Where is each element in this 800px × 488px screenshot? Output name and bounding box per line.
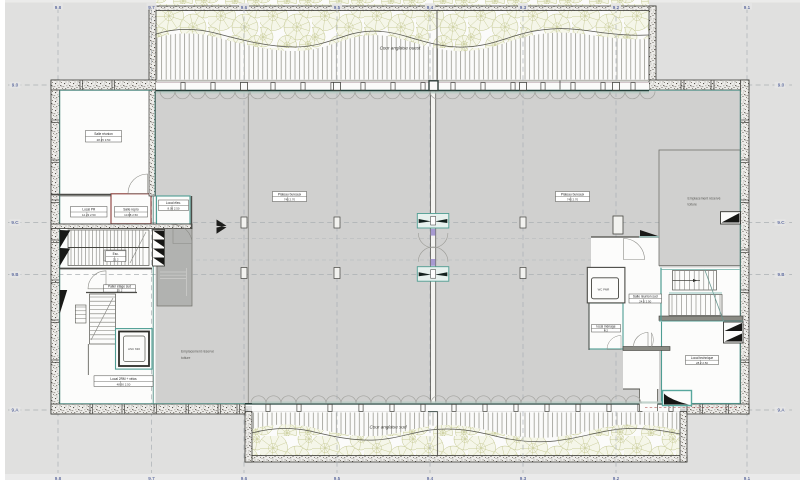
svg-text:9.1: 9.1	[744, 476, 751, 481]
svg-text:WC PMR: WC PMR	[598, 288, 610, 292]
svg-text:Emplacement réservé: Emplacement réservé	[688, 197, 721, 201]
svg-text:9.2: 9.2	[613, 5, 620, 10]
svg-text:toiture: toiture	[688, 203, 698, 207]
svg-text:Esc.: Esc.	[113, 252, 119, 256]
svg-text:9.6: 9.6	[241, 5, 248, 10]
svg-text:9.0: 9.0	[12, 83, 19, 88]
svg-text:9.A: 9.A	[12, 408, 20, 413]
svg-text:9.C: 9.C	[777, 220, 785, 225]
svg-text:Salle repro: Salle repro	[123, 208, 139, 212]
svg-text:toiture: toiture	[181, 356, 191, 360]
svg-text:9.6: 9.6	[241, 476, 248, 481]
svg-text:9.1: 9.1	[744, 5, 751, 10]
svg-text:9.4: 9.4	[427, 5, 434, 10]
svg-text:Local PR: Local PR	[82, 208, 96, 212]
svg-text:Local technique: Local technique	[691, 356, 714, 360]
svg-text:745 2.70: 745 2.70	[567, 198, 579, 202]
svg-text:9.C: 9.C	[11, 220, 19, 225]
svg-text:9.B: 9.B	[12, 272, 19, 277]
svg-text:9.5: 9.5	[334, 476, 341, 481]
svg-text:Plateau bureaux: Plateau bureaux	[278, 193, 302, 197]
svg-text:4.2: 4.2	[604, 328, 608, 332]
svg-text:Salle réunion: Salle réunion	[94, 132, 113, 136]
svg-text:9.8: 9.8	[55, 5, 62, 10]
svg-text:28.15 3.50: 28.15 3.50	[97, 138, 111, 142]
svg-text:9.8: 9.8	[55, 476, 62, 481]
svg-text:Cour anglaise ouest: Cour anglaise ouest	[380, 46, 422, 51]
svg-text:24.5 2.50: 24.5 2.50	[639, 299, 651, 303]
svg-text:9.7: 9.7	[148, 476, 155, 481]
svg-text:Local 2RM + vélos: Local 2RM + vélos	[110, 377, 137, 381]
svg-text:28.2 2.50: 28.2 2.50	[696, 361, 708, 365]
svg-text:12.23 2.50: 12.23 2.50	[82, 213, 96, 217]
svg-text:9.A: 9.A	[778, 408, 786, 413]
svg-text:Salle réunion sud: Salle réunion sud	[633, 295, 658, 299]
svg-text:9.3: 9.3	[520, 476, 527, 481]
svg-text:8.05 2.50: 8.05 2.50	[167, 207, 179, 211]
svg-text:Cour anglaise sud: Cour anglaise sud	[369, 425, 406, 430]
svg-text:Local élec.: Local élec.	[166, 201, 181, 205]
svg-text:9.3: 9.3	[520, 5, 527, 10]
svg-text:9.4: 9.4	[427, 476, 434, 481]
svg-text:9.0: 9.0	[778, 83, 785, 88]
svg-text:9.7: 9.7	[148, 5, 155, 10]
svg-text:9.2: 9.2	[613, 476, 620, 481]
svg-text:745 2.70: 745 2.70	[284, 198, 296, 202]
svg-text:Plateau bureaux: Plateau bureaux	[561, 193, 585, 197]
svg-text:48.90 2.50: 48.90 2.50	[117, 383, 131, 387]
svg-text:9.B: 9.B	[778, 272, 785, 277]
svg-text:Emplacement réservé: Emplacement réservé	[181, 350, 214, 354]
svg-text:21.2: 21.2	[113, 258, 119, 262]
svg-text:9.5: 9.5	[334, 5, 341, 10]
svg-text:10.88 2.50: 10.88 2.50	[124, 213, 138, 217]
svg-text:15.2: 15.2	[117, 288, 123, 292]
svg-text:ASC 630: ASC 630	[128, 347, 140, 351]
